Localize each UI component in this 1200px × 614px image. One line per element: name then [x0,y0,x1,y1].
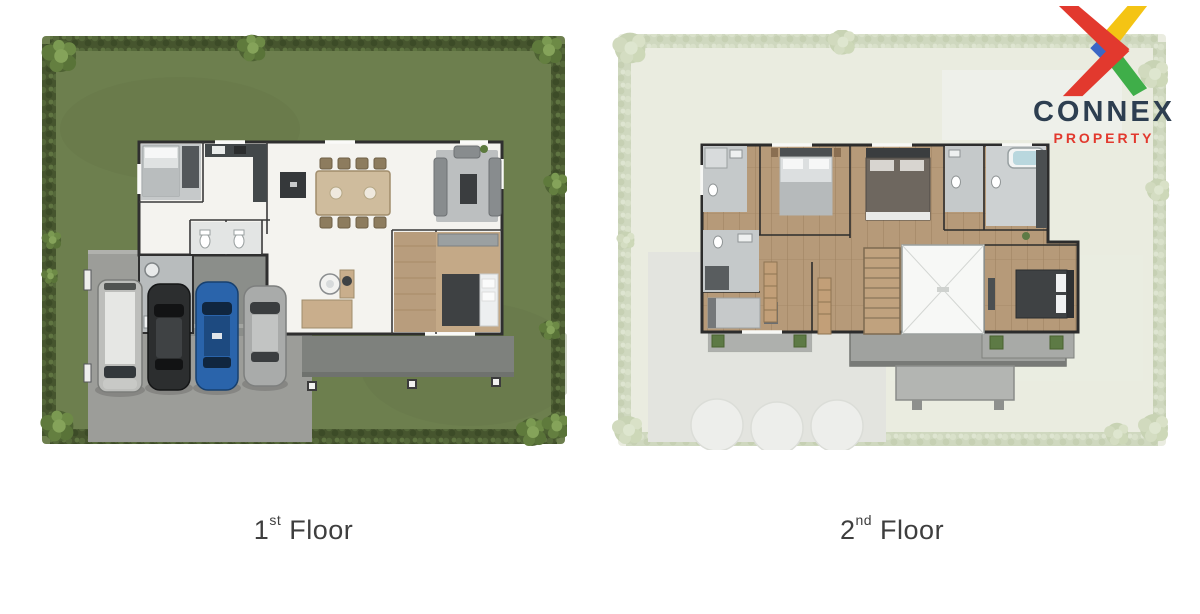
floor-plans-page: CONNEX PROPERTY 1stFloor 2ndFloor [0,0,1200,614]
floor-word: Floor [880,515,944,545]
house-second-floor [702,145,1078,334]
bathrooms [191,222,261,254]
bedroom-top-1 [771,148,841,215]
connex-logo-icon [1052,6,1156,100]
first-floor-label: 1stFloor [40,512,567,546]
bathroom-mid-left [703,230,759,292]
living-room [434,145,501,222]
floor-word: Floor [289,515,353,545]
car-blue [196,282,238,390]
bathroom-top-left [703,146,747,212]
bedroom-2 [394,232,500,332]
bathroom-top-middle [945,146,983,212]
first-floor-panel [40,34,567,446]
car-gray [244,286,286,386]
car-van-silver [98,280,142,392]
bedroom-1 [141,144,201,200]
house-first-floor [139,142,502,334]
right-counter [1036,150,1047,228]
floor-ordinal: st [269,512,281,528]
bedroom-master [866,148,930,220]
connex-logo: CONNEX PROPERTY [1028,6,1180,147]
open-to-below-void [902,245,984,334]
floor-ordinal: nd [855,512,872,528]
staircase [864,248,900,334]
floor-number: 1 [254,515,270,545]
logo-tagline: PROPERTY [1028,130,1180,147]
first-floor-plan [40,34,567,446]
floor-number: 2 [840,515,856,545]
second-floor-label: 2ndFloor [612,512,1172,546]
car-black [148,284,190,390]
logo-name: CONNEX [1028,98,1180,127]
